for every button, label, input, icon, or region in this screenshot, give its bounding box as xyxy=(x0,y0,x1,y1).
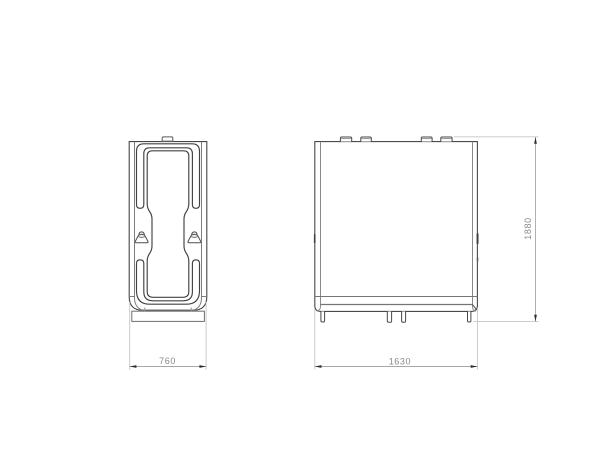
svg-text:1630: 1630 xyxy=(389,356,411,366)
svg-text:1880: 1880 xyxy=(523,217,533,239)
svg-text:760: 760 xyxy=(159,356,176,366)
